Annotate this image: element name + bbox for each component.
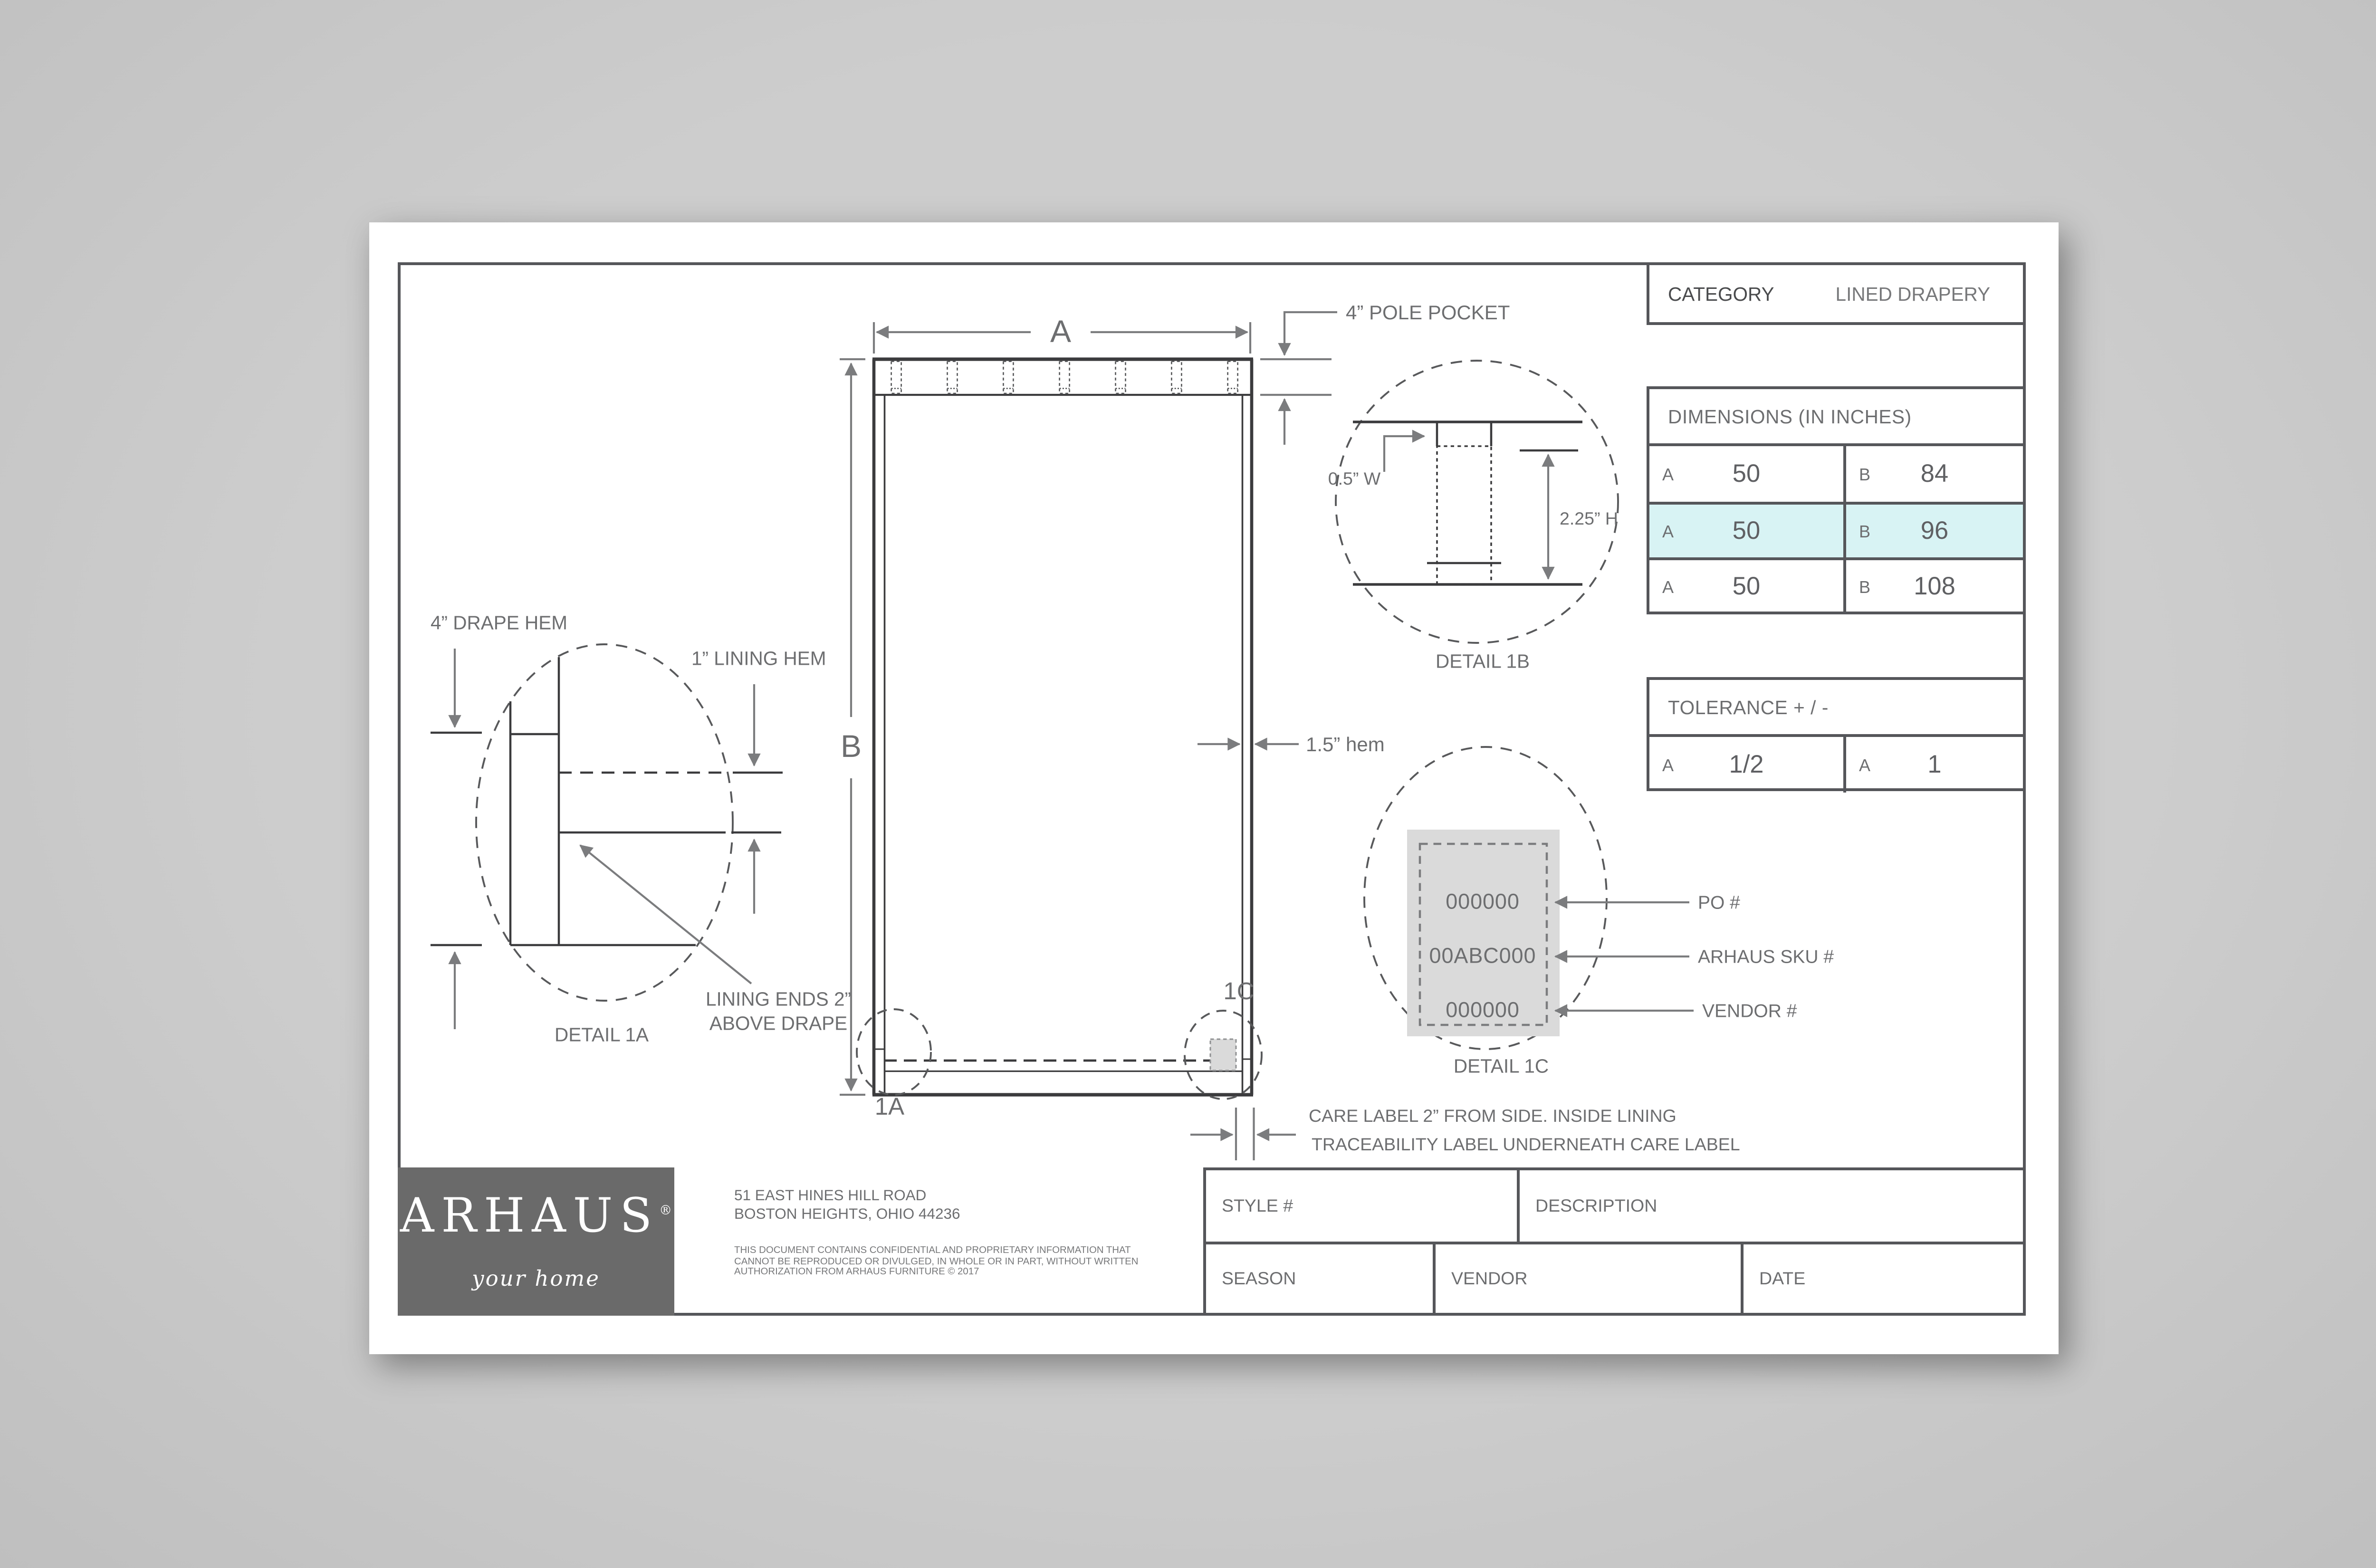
dim-row2-a-value: 50 [1733,516,1760,546]
detail-1c-sku-value: 00ABC000 [1429,945,1536,969]
detail-1c-sku-label: ARHAUS SKU # [1698,946,1834,967]
dim-a-letter: A [1050,314,1071,351]
tab-icon [1116,362,1126,394]
dimensions-row-3: A50 B108 [1649,557,2023,613]
arhaus-logo-word: ARHAUS® [398,1187,674,1243]
dim-row2-a-label: A [1662,521,1674,541]
dim-row3-a-label: A [1662,577,1674,597]
arhaus-logo-block: ARHAUS® your home [398,1167,674,1316]
pocket-leader-down-arrow [1284,312,1337,355]
legal-line3: AUTHORIZATION FROM ARHAUS FURNITURE © 20… [734,1267,1138,1278]
vendor-label: VENDOR [1451,1269,1527,1289]
detail-1a-drape-hem-label: 4” DRAPE HEM [431,612,567,634]
address-line2: BOSTON HEIGHTS, OHIO 44236 [734,1206,960,1224]
tab-icon [891,362,901,394]
tolerance-table-title: TOLERANCE + / - [1649,680,2023,737]
category-label: CATEGORY [1668,283,1774,305]
detail-1a-drawing [431,644,783,1029]
registered-mark: ® [659,1205,672,1219]
address-line1: 51 EAST HINES HILL ROAD [734,1187,960,1206]
dim-b-letter: B [836,728,866,765]
ref-label-1c: 1C [1223,978,1254,1006]
drapery-panel [872,359,1253,1095]
dim-row1-b-label: B [1859,464,1870,484]
detail-1b-width-label: 0.5” W [1328,469,1380,489]
d1a-note-leader-arrow [580,845,751,984]
category-box: CATEGORY LINED DRAPERY [1647,262,2026,325]
detail-1a-lining-hem-label: 1” LINING HEM [691,648,826,669]
care-note-line2: TRACEABILITY LABEL UNDERNEATH CARE LABEL [1312,1135,1740,1155]
vendor-field: VENDOR [1433,1244,1741,1313]
dimension-b [840,359,865,1095]
detail-1b-circle [1336,361,1618,643]
tab-icon [1171,362,1181,394]
dim-row2-b-label: B [1859,521,1870,541]
style-number-label: STYLE # [1222,1196,1293,1216]
address-block: 51 EAST HINES HILL ROAD BOSTON HEIGHTS, … [734,1187,960,1224]
legal-line1: THIS DOCUMENT CONTAINS CONFIDENTIAL AND … [734,1246,1138,1257]
tab-icon [1228,362,1238,394]
pole-pocket-tabs [891,362,1238,394]
ref-circle-1a [857,1009,931,1095]
season-label: SEASON [1222,1269,1296,1289]
dim-row1-b-value: 84 [1921,459,1948,489]
dimensions-row-2-highlighted: A50 B96 [1649,502,2023,557]
tol-a-value: 1/2 [1729,750,1764,780]
date-field: DATE [1741,1244,2023,1313]
arhaus-logo-tagline: your home [398,1266,674,1291]
tol-a-label: A [1662,755,1674,775]
pole-pocket-dimension [1260,312,1337,445]
tolerance-table: TOLERANCE + / - A1/2 A1 [1647,677,2026,791]
detail-1c-po-value: 000000 [1446,890,1520,915]
dim-row2-b-value: 96 [1921,516,1948,546]
detail-1c-vendor-value: 000000 [1446,999,1520,1023]
dimensions-table-title: DIMENSIONS (IN INCHES) [1649,389,2023,446]
care-note-line1: CARE LABEL 2” FROM SIDE. INSIDE LINING [1309,1106,1677,1126]
tab-icon [1060,362,1070,394]
legal-text: THIS DOCUMENT CONTAINS CONFIDENTIAL AND … [734,1246,1138,1278]
detail-1a-note-line1: LINING ENDS 2” [706,989,851,1010]
detail-1a-note-line2: ABOVE DRAPE [709,1013,847,1034]
ref-label-1a: 1A [875,1093,904,1122]
detail-1c-vendor-label: VENDOR # [1702,1000,1797,1022]
detail-1c-title: DETAIL 1C [1454,1056,1549,1077]
tab-icon [948,362,958,394]
detail-1c-drawing [1364,747,1694,1049]
dimensions-table: DIMENSIONS (IN INCHES) A50 B84 A50 B96 A… [1647,386,2026,614]
pole-pocket-label: 4” POLE POCKET [1346,301,1510,324]
d1b-width-leader [1384,436,1424,472]
dim-row1-a-label: A [1662,464,1674,484]
dim-row3-b-value: 108 [1914,572,1955,602]
tab-icon [1003,362,1013,394]
style-number-field: STYLE # [1206,1170,1517,1242]
tol-b-value: 1 [1927,750,1941,780]
tolerance-row: A1/2 A1 [1649,737,2023,793]
dim-row3-b-label: B [1859,577,1870,597]
spec-sheet-canvas: A B 4” POLE POCKET 1.5” hem 1C 1A CARE L… [0,0,2376,1568]
detail-1a-title: DETAIL 1A [555,1024,649,1046]
arhaus-logo-text: ARHAUS [400,1187,659,1243]
description-field: DESCRIPTION [1517,1170,2023,1242]
dimensions-row-1: A50 B84 [1649,446,2023,502]
title-block-fields: STYLE # DESCRIPTION SEASON VENDOR DATE [1203,1167,2026,1316]
detail-1b-height-label: 2.25” H [1560,509,1618,529]
detail-1c-po-label: PO # [1698,892,1740,913]
date-label: DATE [1759,1269,1805,1289]
detail-1b-title: DETAIL 1B [1436,651,1530,672]
category-value: LINED DRAPERY [1836,283,1991,305]
dim-row3-a-value: 50 [1733,572,1760,602]
dim-row1-a-value: 50 [1733,459,1760,489]
detail-1b-drawing [1336,361,1618,643]
detail-1a-circle [476,644,733,1001]
care-label-swatch [1210,1039,1236,1071]
description-label: DESCRIPTION [1535,1196,1657,1216]
tol-b-label: A [1859,755,1870,775]
season-field: SEASON [1206,1244,1433,1313]
care-label-dimension [1190,1108,1296,1160]
side-hem-label: 1.5” hem [1306,733,1385,755]
legal-line2: CANNOT BE REPRODUCED OR DIVULGED, IN WHO… [734,1257,1138,1268]
